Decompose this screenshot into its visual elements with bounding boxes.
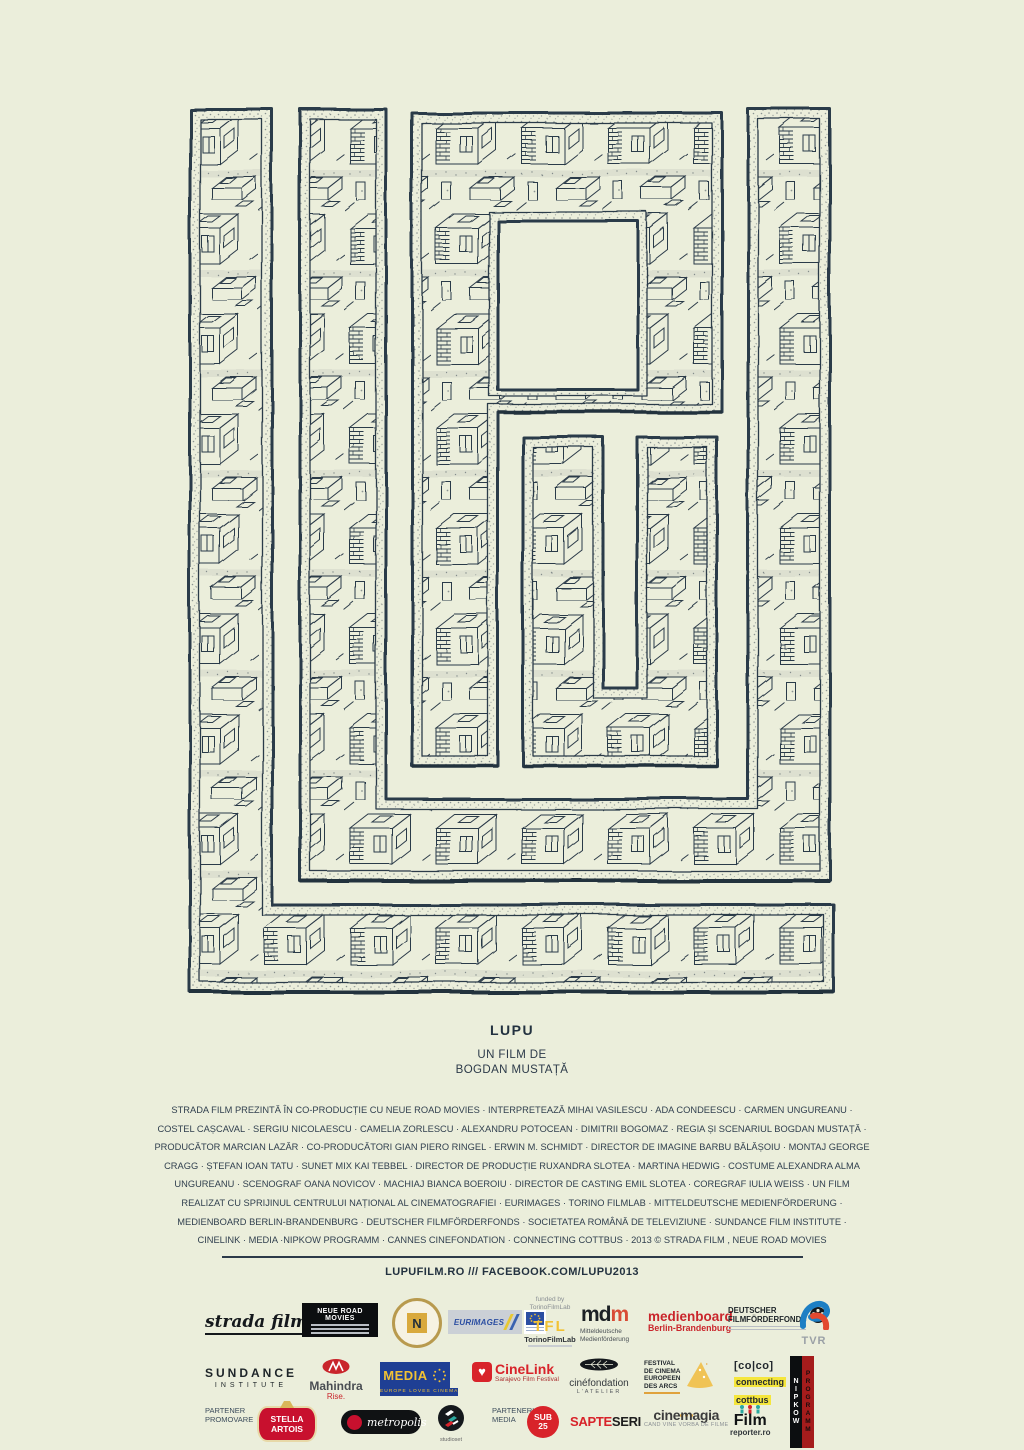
microtext-bar [311, 1332, 369, 1334]
sundance-line2: INSTITUTE [205, 1382, 297, 1389]
page-title: LUPU [0, 1022, 1024, 1038]
microtext-bar [311, 1328, 369, 1330]
logo-neue-road-movies: NEUE ROAD MOVIES [302, 1303, 378, 1337]
logo-cinemagia: cinemagia CAND VINE VORBA DE FILME [644, 1404, 729, 1428]
neue-road-movies-wordmark: NEUE ROAD MOVIES [302, 1308, 378, 1322]
cinelink-wordmark: CineLink [495, 1362, 559, 1376]
logo-les-arcs-festival: FESTIVAL DE CINEMA EUROPEEN DES ARCS [644, 1360, 714, 1394]
tvr-wordmark: TVR [794, 1335, 834, 1347]
media-box: MEDIA [380, 1362, 450, 1388]
credits-line: REALIZAT CU SPRIJINUL CENTRULUI NAȚIONAL… [0, 1194, 1024, 1213]
byline-un-film-de: UN FILM DE [0, 1049, 1024, 1061]
logo-cinelink: ♥ CineLink Sarajevo Film Festival [472, 1362, 559, 1383]
logo-tvr: TVR [794, 1294, 834, 1347]
media-wordmark: MEDIA [383, 1368, 427, 1383]
stella-line2: ARTOIS [271, 1424, 303, 1434]
mdm-subtitle-line: Medienförderung [580, 1336, 629, 1344]
strada-film-wordmark: strada film [205, 1312, 308, 1335]
credits-block: STRADA FILM PREZINTĂ ÎN CO-PRODUCȚIE CU … [0, 1101, 1024, 1250]
cnc-monogram: N [407, 1313, 427, 1333]
tvr-mark-icon [795, 1294, 833, 1330]
tfl-acronym: TFL [524, 1318, 576, 1335]
logo-connecting-cottbus: [co|co] connecting cottbus [734, 1360, 786, 1408]
les-arcs-line: DES ARCS [644, 1383, 680, 1391]
medienboard-wordmark: medienboard [648, 1310, 733, 1323]
studioset-mark-icon [437, 1404, 465, 1432]
credits-line: PRODUCĂTOR MARCIAN LAZĂR · CO-PRODUCĂTOR… [0, 1138, 1024, 1157]
logo-stella-artois: STELLA ARTOIS [257, 1406, 317, 1442]
cinelink-subtitle: Sarajevo Film Festival [495, 1376, 559, 1383]
logo-sapte-seri: SAPTESERI [570, 1414, 641, 1429]
logo-sub25: SUB 25 [527, 1406, 559, 1438]
mdm-letter: d [599, 1303, 611, 1326]
logo-media-programme: MEDIA EUROPE LOVES CINEMA [380, 1362, 458, 1396]
cinemagia-wordmark: cinemagia [644, 1409, 729, 1422]
funded-by-label: funded by [524, 1296, 576, 1304]
sundance-line1: SUNDANCE [205, 1366, 297, 1380]
les-arcs-line: DE CINEMA [644, 1368, 680, 1376]
credits-line: MEDIENBOARD BERLIN-BRANDENBURG · DEUTSCH… [0, 1213, 1024, 1232]
media-tagline: EUROPE LOVES CINEMA [380, 1388, 458, 1396]
les-arcs-line: FESTIVAL [644, 1360, 680, 1368]
mountain-triangle-icon [684, 1360, 714, 1388]
credits-line: CINELINK · MEDIA ·NIPKOW PROGRAMM · CANN… [0, 1231, 1024, 1250]
microtext-bar [311, 1324, 369, 1326]
logo-sundance: SUNDANCE INSTITUTE [205, 1366, 297, 1389]
logo-cinefondation: cinéfondation L'ATELIER [566, 1358, 632, 1395]
website-and-facebook-text: LUPUFILM.RO /// FACEBOOK.COM/LUPU2013 [0, 1266, 1024, 1278]
sub25-line2: 25 [538, 1422, 547, 1432]
cinefondation-subtitle: L'ATELIER [566, 1389, 632, 1395]
les-arcs-line: EUROPEEN [644, 1375, 680, 1383]
logo-mdm: mdm Mitteldeutsche Medienförderung [580, 1305, 629, 1344]
label-line: PARTENER [205, 1406, 253, 1415]
funded-org-label: TorinoFilmLab [524, 1304, 576, 1312]
programm-word-vertical: PROGRAMM [802, 1356, 814, 1448]
stella-line1: STELLA [270, 1414, 303, 1424]
mahindra-tagline: Rise. [301, 1392, 371, 1401]
coco-line1: connecting [734, 1377, 786, 1387]
microtext-bar [644, 1392, 680, 1394]
seri-part: SERI [612, 1414, 641, 1429]
mdm-subtitle-line: Mitteldeutsche [580, 1328, 629, 1336]
credits-line: COSTEL CAȘCAVAL · SERGIU NICOLAESCU · CA… [0, 1120, 1024, 1139]
mahindra-oval-icon [321, 1358, 351, 1375]
director-name: BOGDAN MUSTAȚĂ [0, 1064, 1024, 1076]
microtext-bar [528, 1345, 572, 1347]
label-line: PROMOVARE [205, 1415, 253, 1424]
film-wordmark: Film [730, 1414, 770, 1428]
coco-mark: [co|co] [734, 1360, 786, 1372]
logo-cnc-badge: N [392, 1298, 442, 1348]
medienboard-region: Berlin-Brandenburg [648, 1323, 733, 1333]
credits-line: CRAGG · ȘTEFAN IOAN TATU · SUNET MIX KAI… [0, 1157, 1024, 1176]
cinemagia-tagline: CAND VINE VORBA DE FILME [644, 1422, 729, 1428]
eu-stars-icon [432, 1368, 447, 1383]
logo-torinofilmlab: funded by TorinoFilmLab TFL TorinoFilmLa… [524, 1296, 576, 1347]
mdm-letter: m [581, 1303, 599, 1326]
logo-studioset: studioset [436, 1404, 466, 1443]
mahindra-wordmark: Mahindra [301, 1380, 371, 1392]
eurimages-box: EURIMAGES [448, 1310, 522, 1334]
mdm-monogram: mdm [580, 1305, 629, 1325]
logo-metropolis: metropolis [341, 1410, 421, 1434]
heart-icon: ♥ [472, 1362, 492, 1382]
cinefondation-wordmark: cinéfondation [566, 1378, 632, 1389]
nipkow-word-vertical: NIPKOW [790, 1356, 802, 1448]
logo-strada-film: strada film [205, 1312, 308, 1332]
label-partener-promovare: PARTENER PROMOVARE [205, 1406, 253, 1424]
metropolis-wordmark: metropolis [367, 1416, 427, 1429]
logo-medienboard: medienboard Berlin-Brandenburg [648, 1310, 733, 1333]
logo-mahindra: Mahindra Rise. [301, 1358, 371, 1401]
credits-line: UNGUREANU · SCENOGRAF OANA NOVICOV · MAC… [0, 1175, 1024, 1194]
studioset-wordmark: studioset [436, 1437, 466, 1443]
reporter-subtitle: reporter.ro [730, 1428, 770, 1437]
logo-nipkow-programm: NIPKOW PROGRAMM [790, 1356, 814, 1448]
maze-letter-u-inner [523, 437, 717, 766]
palm-leaf-icon [579, 1358, 619, 1371]
eurimages-wordmark: EURIMAGES [454, 1318, 504, 1327]
divider-rule [222, 1256, 803, 1258]
mdm-letter-red: m [610, 1303, 628, 1326]
sapte-part: SAPTE [570, 1414, 612, 1429]
logo-filmreporter: Film reporter.ro [730, 1404, 770, 1437]
credits-line: STRADA FILM PREZINTĂ ÎN CO-PRODUCȚIE CU … [0, 1101, 1024, 1120]
tfl-wordmark: TorinoFilmLab [524, 1335, 576, 1344]
metropolis-red-circle-icon [347, 1415, 362, 1430]
